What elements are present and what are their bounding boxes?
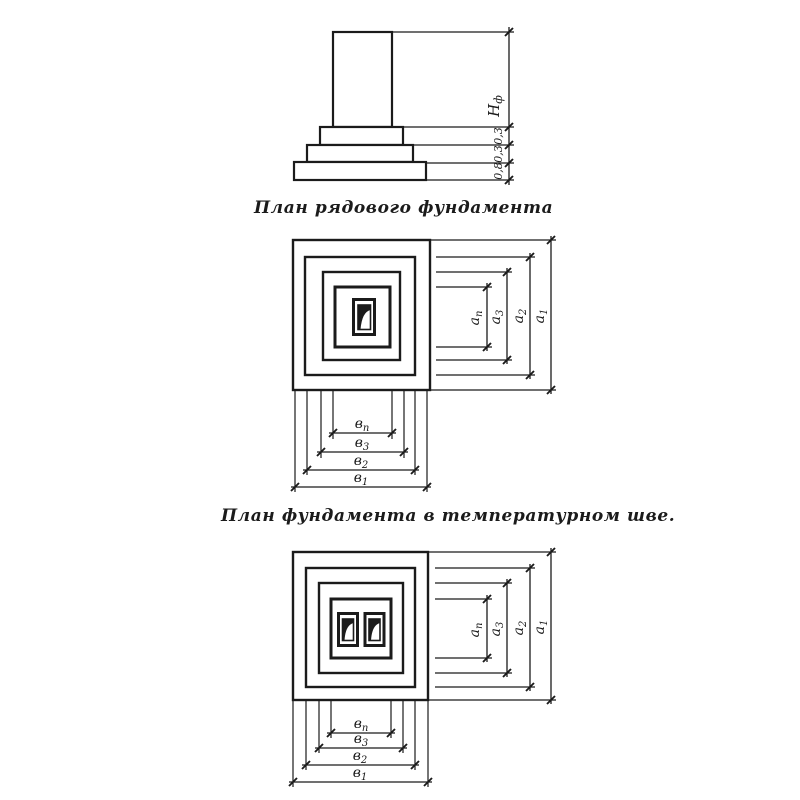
plan1-dim-a-2: а2 — [511, 309, 529, 324]
caption-plan-joint: План фундамента в температурном шве. — [220, 506, 675, 526]
plan-joint-foundation: ап а3 а2 а1 вп в3 в2 в1 — [289, 548, 556, 787]
drawing-sheet: Нф 0,3 0,3 0,8 План рядового фундамента … — [0, 0, 800, 800]
plan2-square-1 — [293, 552, 428, 700]
step-height-label-1: 0,3 — [492, 127, 505, 145]
plan1-dim-a-1: а1 — [532, 309, 550, 324]
plan2-dim-a-p: ап — [467, 623, 485, 638]
foundation-step-3 — [294, 162, 426, 180]
plan1-dim-a-p: ап — [467, 311, 485, 326]
plan2-dim-a-2: а2 — [511, 621, 529, 636]
plan2-square-2 — [306, 568, 415, 687]
plan1-right-extension-lines — [430, 240, 556, 390]
caption-plan-ordinary: План рядового фундамента — [253, 198, 553, 218]
foundation-height-label: Нф — [485, 95, 505, 118]
step-height-label-3: 0,8 — [492, 162, 505, 180]
plan1-dim-a-3: а3 — [488, 310, 506, 325]
plan2-column-socket-right — [365, 614, 384, 646]
step-height-label-2: 0,3 — [492, 145, 505, 163]
plan-ordinary-foundation: ап а3 а2 а1 вп в3 в2 в1 — [291, 236, 556, 492]
plan2-dim-b-1: в1 — [353, 765, 368, 783]
plan1-dim-b-3: в3 — [355, 435, 370, 453]
column-shaft — [333, 32, 392, 127]
plan2-dim-a-1: а1 — [532, 620, 550, 635]
plan1-dim-b-p: вп — [355, 416, 370, 434]
plan1-column-socket — [354, 300, 375, 335]
plan2-dim-b-2: в2 — [353, 748, 368, 766]
plan2-right-extension-lines — [428, 552, 556, 700]
plan2-column-socket-left — [339, 614, 358, 646]
elevation-view: Нф 0,3 0,3 0,8 — [294, 27, 514, 185]
plan1-dim-b-2: в2 — [354, 453, 369, 471]
plan2-dim-a-3: а3 — [488, 622, 506, 637]
foundation-step-1 — [320, 127, 403, 145]
foundation-step-2 — [307, 145, 413, 162]
foundation-drawing: Нф 0,3 0,3 0,8 План рядового фундамента … — [0, 0, 800, 800]
plan1-dim-b-1: в1 — [354, 470, 369, 488]
